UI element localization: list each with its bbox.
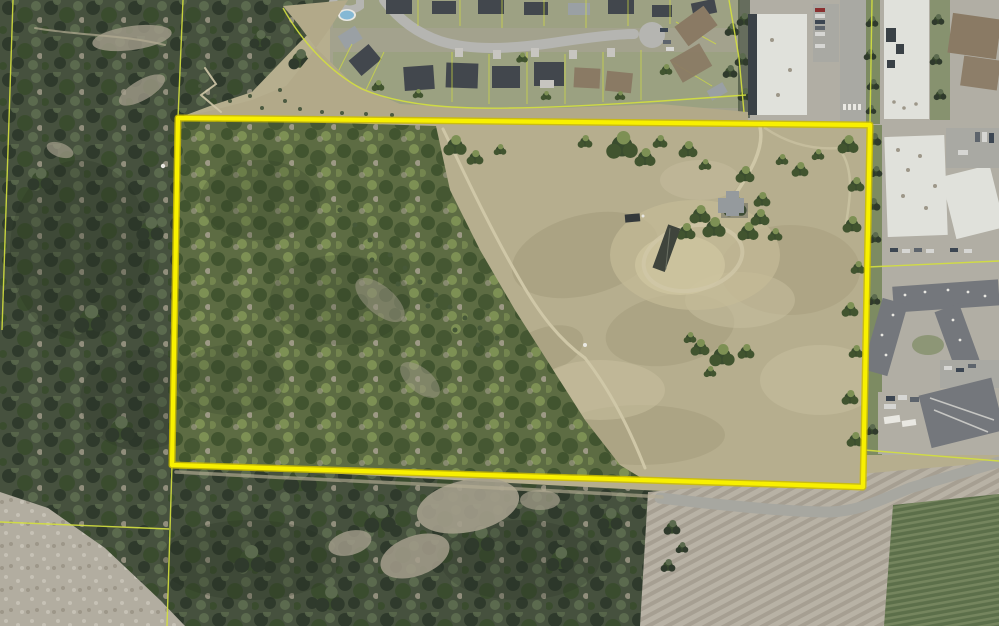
apartment-building-north [884, 135, 947, 237]
vineyard-field [884, 494, 999, 626]
aerial-photo [0, 0, 999, 626]
vehicle-on-trail [161, 164, 165, 168]
street-east [840, 0, 866, 122]
vehicle [625, 213, 641, 222]
parcel-interior [172, 118, 880, 487]
commercial-building-west [757, 14, 807, 115]
building-brown-roof [947, 13, 999, 59]
apartments-east [862, 125, 999, 455]
commercial-block [735, 0, 999, 125]
building-shadow [748, 14, 757, 115]
cul-de-sac [639, 22, 665, 48]
commercial-building-east [884, 0, 929, 119]
swimming-pool [340, 11, 354, 20]
aerial-map-canvas [0, 0, 999, 626]
